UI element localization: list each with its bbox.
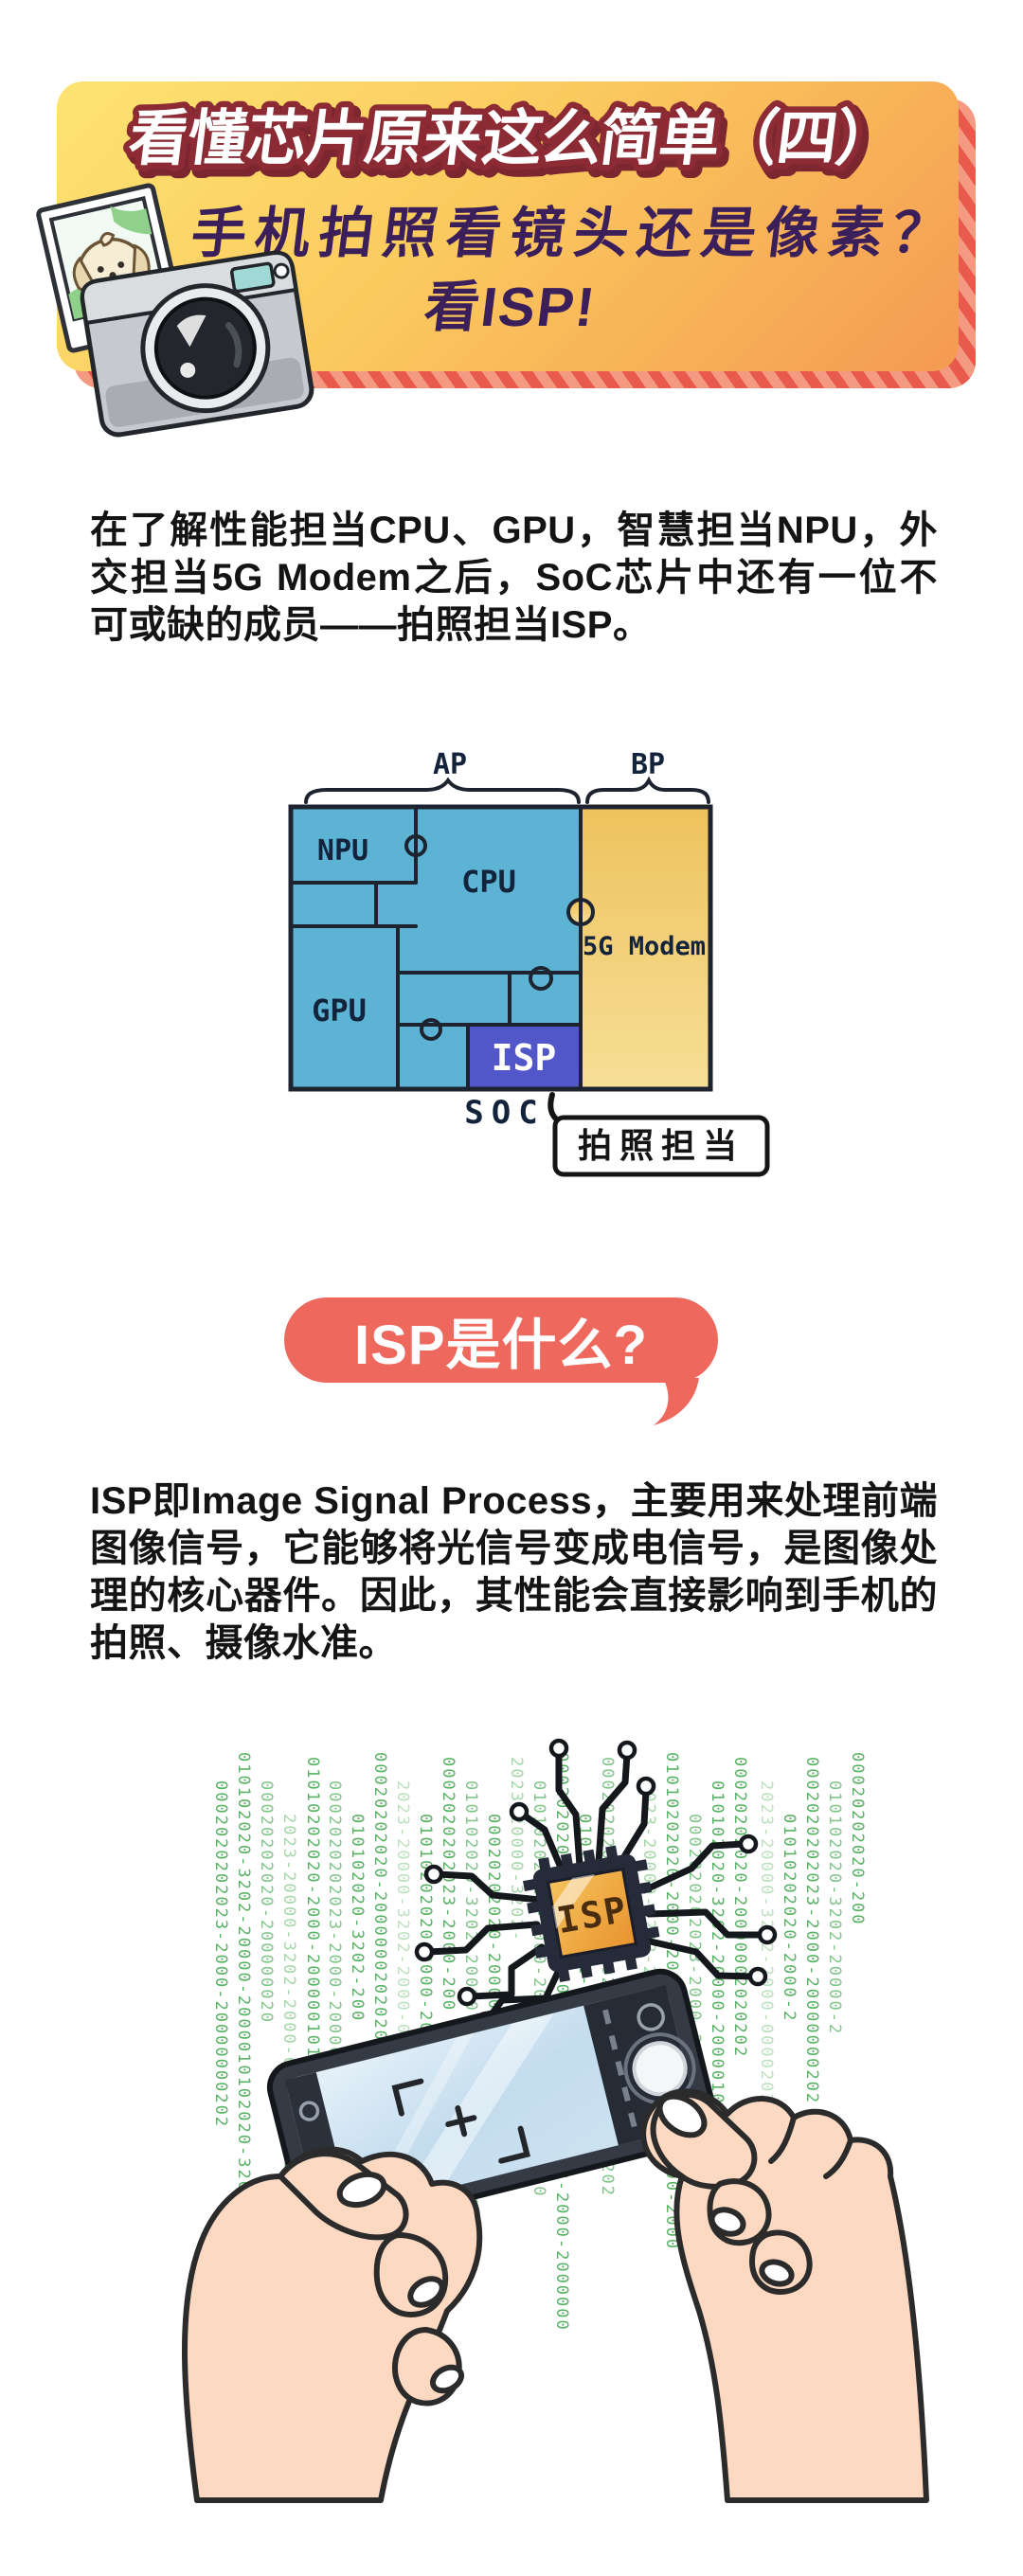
question-bubble-tail [652, 1378, 712, 1429]
svg-text:010102020-3202-200: 010102020-3202-200 [348, 1814, 367, 2022]
camera-body-icon [81, 250, 314, 437]
isp-block-label: ISP [492, 1037, 557, 1079]
soc-diagram: NPU CPU GPU 5G Modem ISP AP BP SOC 拍照担当 [275, 748, 786, 1193]
svg-text:00020202020-200000020: 00020202020-200000020 [257, 1780, 276, 2024]
cpu-label: CPU [461, 864, 516, 900]
svg-text:2023-20000-3202-: 2023-20000-3202- [507, 1757, 526, 1942]
svg-text:00020202020-20000002020202: 00020202020-20000002020202 [730, 1757, 749, 2058]
svg-text:01010202020-2000-200000101: 01010202020-2000-200000101 [303, 1757, 322, 2058]
svg-text:010102020-3202-20000-2: 010102020-3202-20000-2 [825, 1780, 844, 2035]
svg-text:01010202020-2000-2: 01010202020-2000-2 [780, 1814, 799, 2022]
svg-text:0002020202023-2000-200: 0002020202023-2000-200 [439, 1757, 458, 2012]
intro-paragraph: 在了解性能担当CPU、GPU，智慧担当NPU，外交担当5G Modem之后，So… [90, 507, 938, 649]
bp-label: BP [631, 748, 665, 781]
npu-label: NPU [317, 834, 368, 868]
callout-label: 拍照担当 [578, 1126, 745, 1165]
right-hand [643, 2088, 926, 2500]
question-bubble-text: ISP是什么? [354, 1300, 648, 1380]
infographic-page: { "header": { "title": "看懂芯片原来这么简单（四）", … [0, 0, 1023, 2576]
svg-text:010102020-3202-20000-200001010: 010102020-3202-20000-2000010102020-3202-… [234, 1752, 253, 2250]
svg-text:0002020202023-2000-20000000202: 0002020202023-2000-20000000202 [802, 1757, 821, 2104]
svg-text:00020202020-200: 00020202020-200 [848, 1752, 867, 1926]
banner-title: 看懂芯片原来这么简单（四） [125, 104, 903, 172]
camera-illustration [28, 175, 341, 459]
gpu-label: GPU [312, 993, 367, 1029]
svg-text:0002020202023-2000-20000000202: 0002020202023-2000-20000000202 [211, 1780, 230, 2128]
modem-label: 5G Modem [583, 932, 706, 961]
banner-subtitle2: 看ISP! [421, 277, 600, 338]
left-hand [185, 2149, 479, 2500]
body-paragraph: ISP即Image Signal Process，主要用来处理前端图像信号，它能… [90, 1477, 938, 1667]
soc-caption: SOC [464, 1094, 545, 1132]
ap-label: AP [433, 748, 467, 781]
isp-phone-illustration: 0002020202023-2000-20000000202010102020-… [114, 1724, 909, 2500]
question-bubble: ISP是什么? [284, 1297, 718, 1383]
